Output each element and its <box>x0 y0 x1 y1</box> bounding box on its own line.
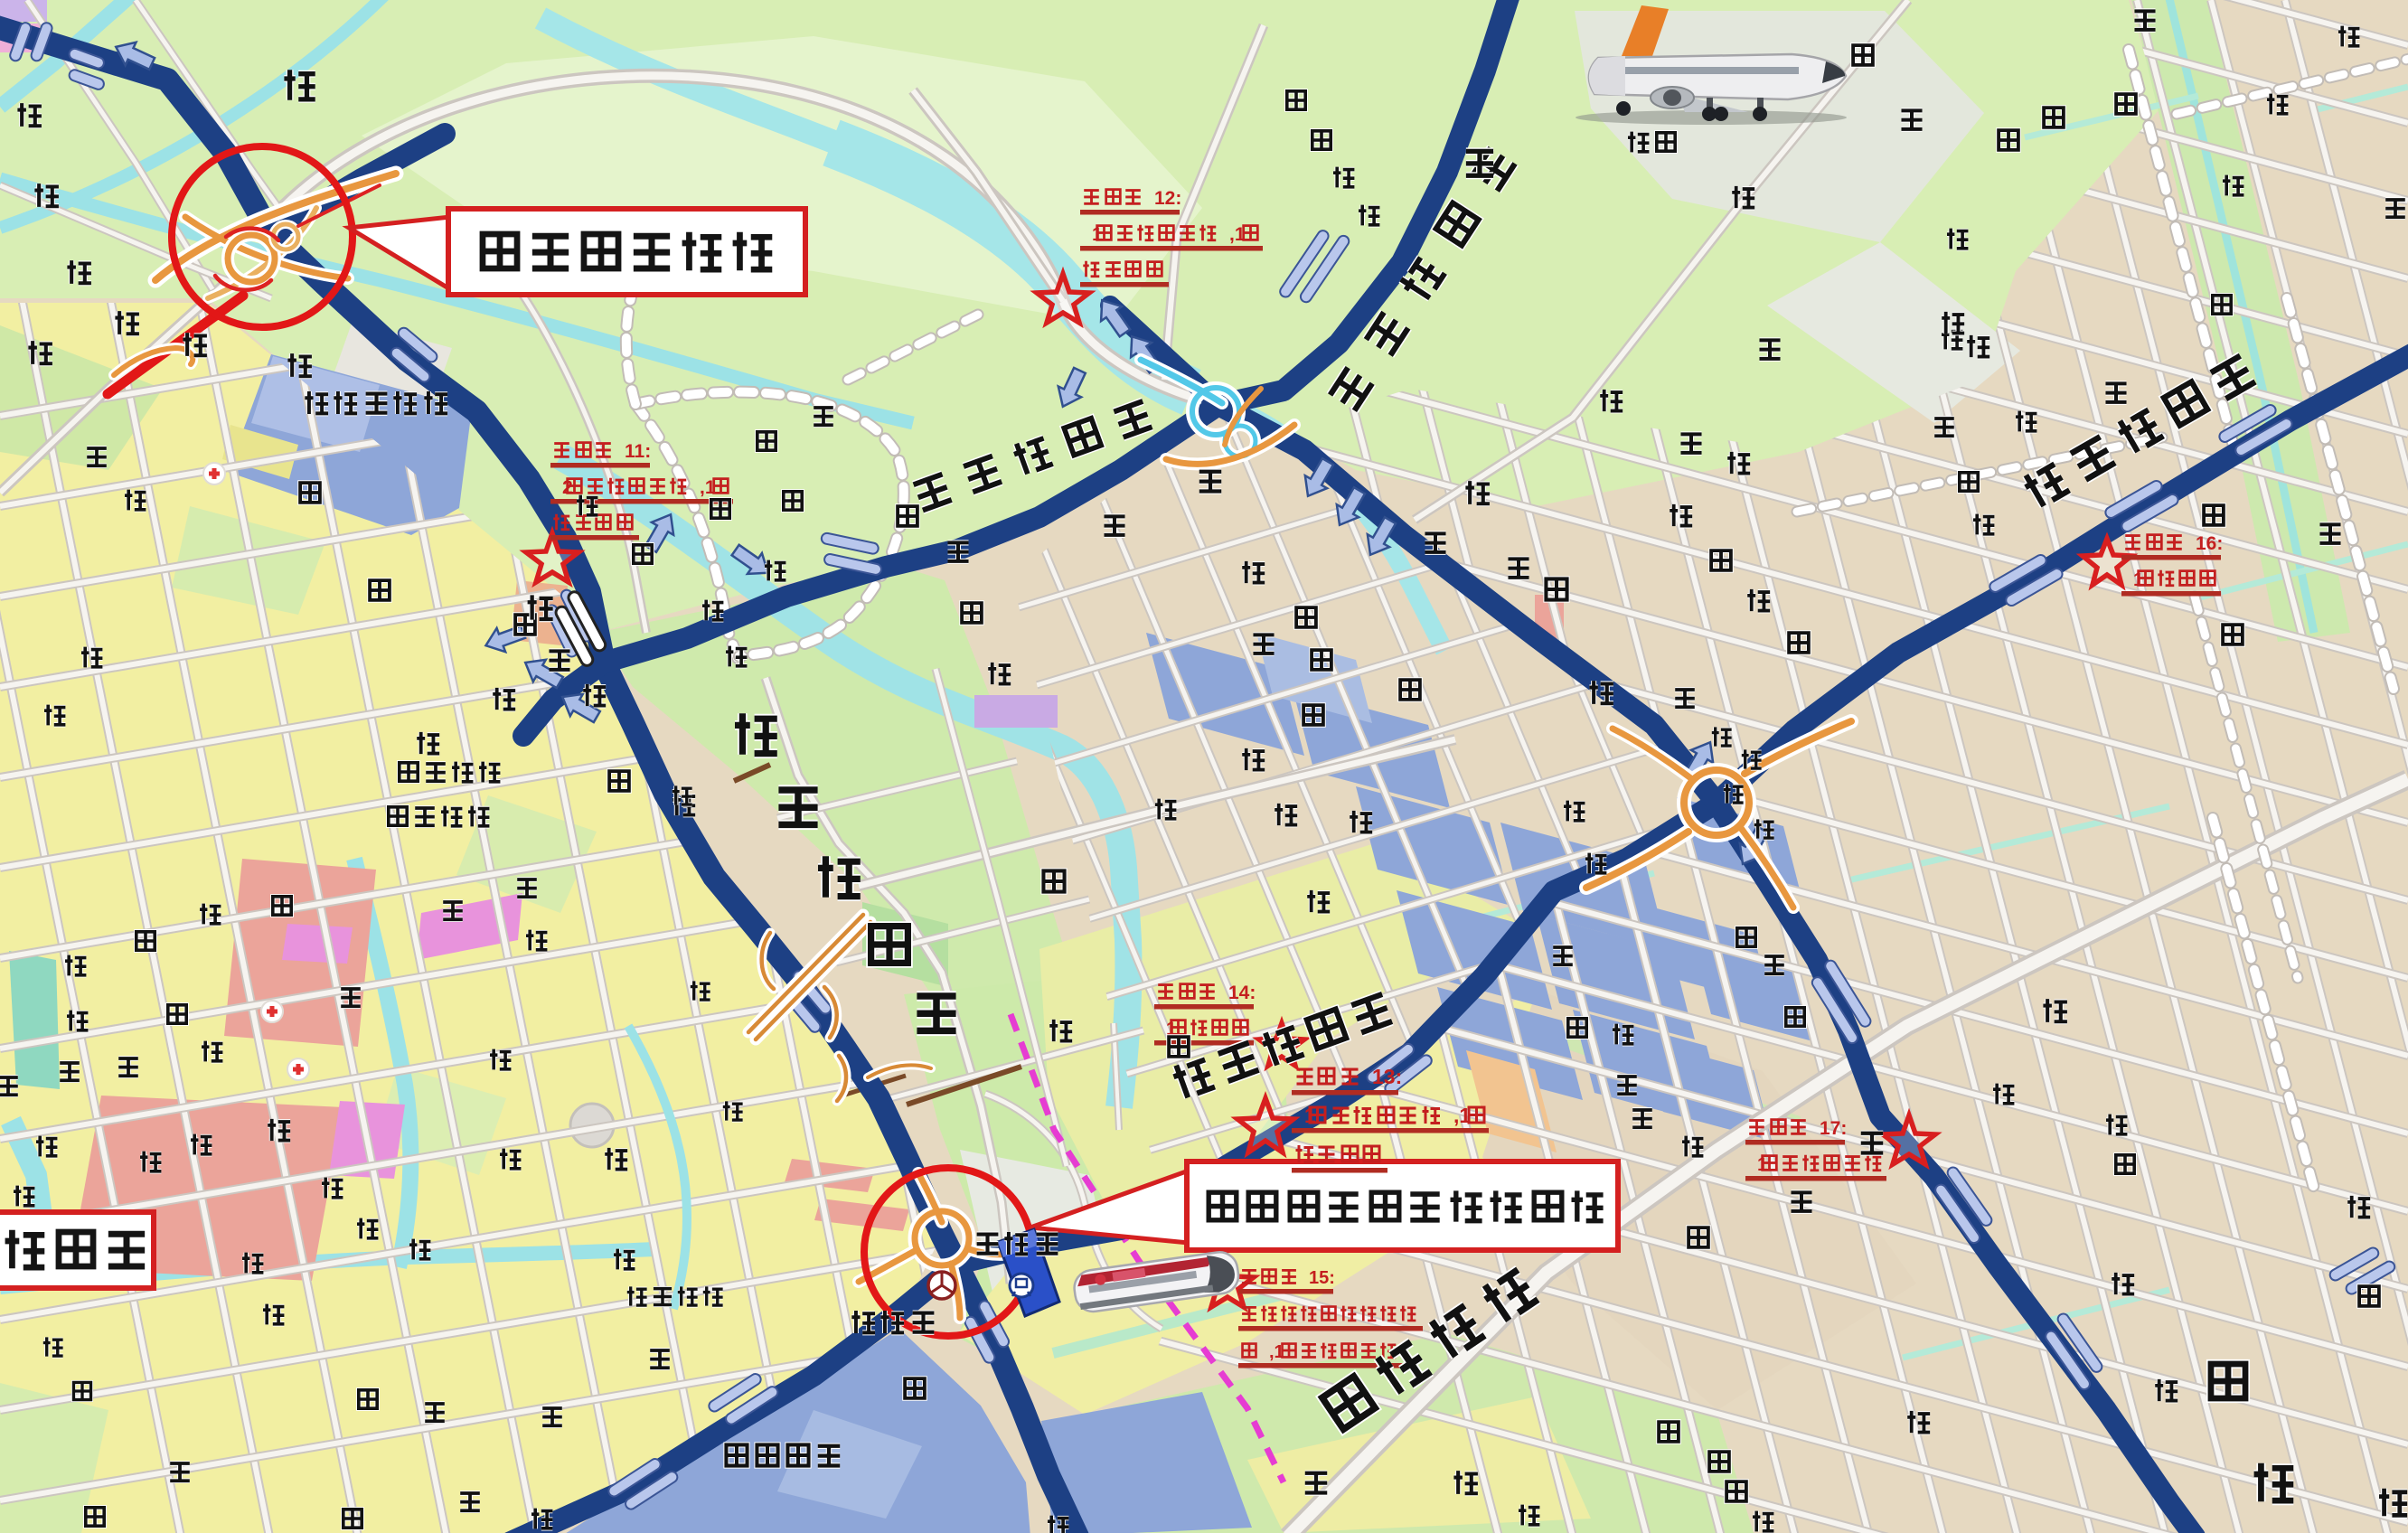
svg-text:15:: 15: <box>1309 1268 1335 1288</box>
svg-text:16:: 16: <box>2196 533 2223 554</box>
svg-text:12:: 12: <box>1154 188 1181 209</box>
svg-text:17:: 17: <box>1820 1118 1847 1139</box>
svg-text:11:: 11: <box>625 441 651 462</box>
svg-text:14:: 14: <box>1228 983 1256 1003</box>
svg-text:13:: 13: <box>1372 1065 1402 1088</box>
